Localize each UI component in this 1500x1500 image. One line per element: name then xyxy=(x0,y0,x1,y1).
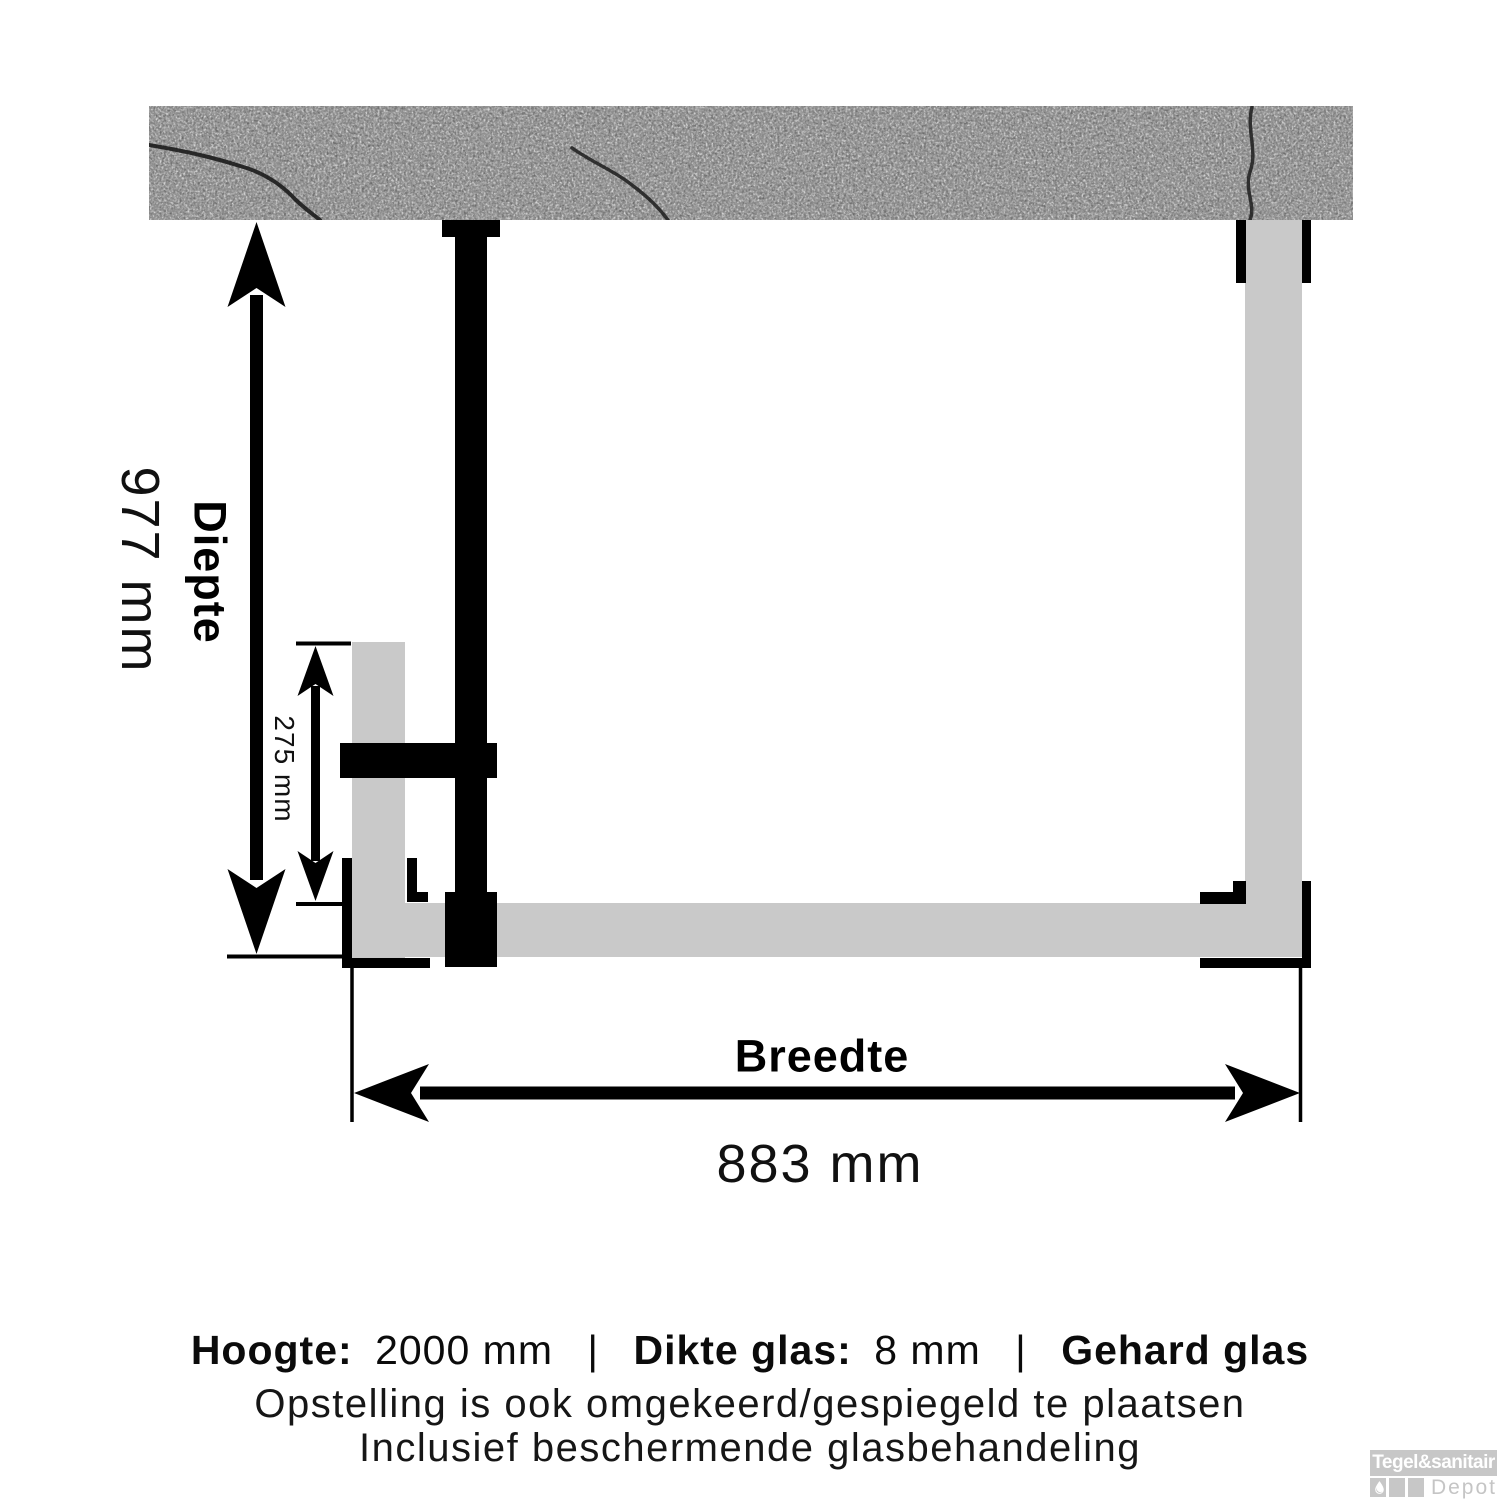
depth-value: 977 mm xyxy=(113,466,167,673)
glass-panels xyxy=(352,220,1302,958)
arrowhead-right xyxy=(1225,1064,1300,1122)
inner-corner-clip-horizontal-left xyxy=(407,892,428,902)
spec-separator: | xyxy=(587,1327,599,1373)
wall xyxy=(149,106,1353,220)
inner-panel-bracket-bottom xyxy=(343,958,430,968)
inner-panel-bracket-vertical xyxy=(342,858,352,968)
profiles xyxy=(340,220,1311,968)
wall-texture-dark-grain xyxy=(149,106,1353,220)
inner-corner-clip-horizontal-right xyxy=(1200,892,1246,904)
diagram-svg xyxy=(0,0,1500,1500)
width-value: 883 mm xyxy=(716,1137,923,1191)
spec-thickness-value: 8 mm xyxy=(874,1327,981,1373)
brand-logo-row: Depot xyxy=(1370,1478,1497,1497)
spec-height-value: 2000 mm xyxy=(375,1327,553,1373)
horizontal-support-arm xyxy=(340,743,497,778)
wall-profile-right-outer xyxy=(1236,220,1246,283)
vertical-stabilisation-bar xyxy=(455,236,487,893)
wall-mount-cap-left xyxy=(442,220,500,237)
spec-height-label: Hoogte: xyxy=(191,1327,353,1373)
note-treatment: Inclusief beschermende glasbehandeling xyxy=(0,1426,1500,1470)
spec-glass-type: Gehard glas xyxy=(1061,1327,1309,1373)
spec-thickness-label: Dikte glas: xyxy=(633,1327,851,1373)
corner-junction-block xyxy=(445,892,497,967)
dimension-depth-arrow xyxy=(227,222,343,957)
depth-label: Diepte xyxy=(188,500,233,644)
arrowhead-down xyxy=(228,869,286,954)
corner-bracket-right-bottom xyxy=(1200,958,1311,968)
glass-panel-inner xyxy=(352,642,405,958)
water-drop-icon xyxy=(1370,1478,1386,1497)
arrowhead-up xyxy=(228,222,286,307)
corner-bracket-right-vertical xyxy=(1302,881,1311,968)
diagram-canvas: Diepte 977 mm 275 mm Breedte 883 mm Hoog… xyxy=(0,0,1500,1500)
inner-depth-value: 275 mm xyxy=(270,715,298,822)
brand-banner: Tegel&sanitair xyxy=(1370,1450,1497,1476)
spec-separator: | xyxy=(1015,1327,1027,1373)
wall-profile-right-inner xyxy=(1302,220,1311,283)
brand-name: Tegel&sanitair xyxy=(1372,1452,1495,1473)
note-mirrored: Opstelling is ook omgekeerd/gespiegeld t… xyxy=(0,1382,1500,1426)
footer: Hoogte: 2000 mm | Dikte glas: 8 mm | Geh… xyxy=(0,1326,1500,1470)
width-label: Breedte xyxy=(735,1034,910,1079)
glass-panel-right xyxy=(1245,220,1302,957)
brand-logo: Tegel&sanitair Depot xyxy=(1370,1450,1497,1497)
arrowhead-left xyxy=(354,1064,429,1122)
logo-square xyxy=(1408,1478,1424,1497)
brand-sub: Depot xyxy=(1431,1478,1497,1497)
logo-square xyxy=(1389,1478,1405,1497)
spec-line: Hoogte: 2000 mm | Dikte glas: 8 mm | Geh… xyxy=(0,1326,1500,1374)
